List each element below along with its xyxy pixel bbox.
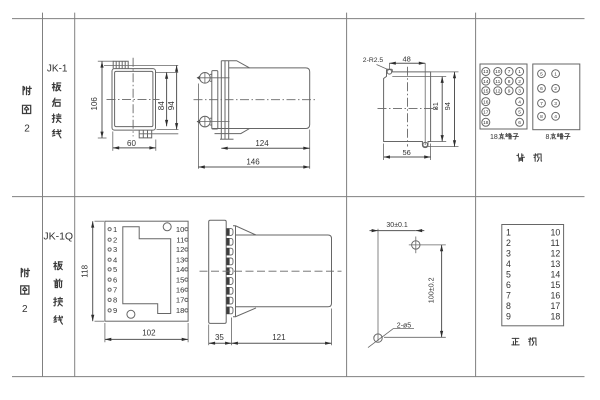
- svg-text:3: 3: [506, 249, 511, 259]
- svg-text:100±0.2: 100±0.2: [427, 277, 436, 303]
- svg-text:35: 35: [215, 333, 224, 342]
- svg-text:14: 14: [551, 269, 561, 279]
- svg-text:124: 124: [255, 139, 269, 148]
- svg-text:102: 102: [142, 329, 156, 338]
- svg-text:4: 4: [518, 99, 521, 105]
- svg-text:94: 94: [167, 101, 176, 110]
- svg-text:14: 14: [176, 265, 184, 274]
- svg-text:1: 1: [518, 69, 521, 75]
- svg-text:9: 9: [508, 88, 511, 94]
- svg-text:4: 4: [554, 114, 557, 120]
- svg-text:2: 2: [518, 79, 521, 85]
- svg-text:2: 2: [506, 238, 511, 248]
- svg-text:8: 8: [546, 134, 550, 141]
- svg-text:2: 2: [22, 304, 28, 315]
- svg-text:15: 15: [551, 280, 561, 290]
- svg-text:30±0.1: 30±0.1: [386, 222, 407, 229]
- svg-text:6: 6: [113, 275, 117, 284]
- svg-text:8: 8: [508, 79, 511, 85]
- svg-text:2: 2: [113, 235, 117, 244]
- svg-text:56: 56: [403, 148, 411, 157]
- svg-text:106: 106: [90, 97, 99, 111]
- svg-text:18: 18: [483, 120, 489, 126]
- svg-text:48: 48: [403, 54, 411, 63]
- svg-text:14: 14: [483, 79, 489, 85]
- svg-text:4: 4: [506, 259, 511, 269]
- svg-text:118: 118: [80, 264, 89, 277]
- svg-text:5: 5: [540, 71, 543, 77]
- svg-text:81: 81: [431, 102, 440, 110]
- svg-text:8: 8: [506, 301, 511, 311]
- svg-text:5: 5: [113, 265, 117, 274]
- svg-text:10: 10: [176, 225, 184, 234]
- svg-text:2-R2.5: 2-R2.5: [363, 57, 384, 64]
- svg-text:5: 5: [506, 269, 511, 279]
- svg-text:3: 3: [113, 245, 117, 254]
- svg-text:84: 84: [157, 101, 166, 110]
- svg-text:9: 9: [113, 306, 117, 315]
- svg-text:13: 13: [551, 259, 561, 269]
- svg-text:7: 7: [508, 69, 511, 75]
- svg-text:12: 12: [495, 88, 501, 94]
- svg-text:17: 17: [551, 301, 561, 311]
- svg-text:6: 6: [540, 86, 543, 92]
- svg-text:13: 13: [483, 69, 489, 75]
- svg-text:2: 2: [24, 123, 30, 134]
- svg-text:10: 10: [551, 228, 561, 238]
- svg-text:7: 7: [506, 291, 511, 301]
- svg-text:11: 11: [495, 79, 500, 85]
- svg-text:10: 10: [495, 69, 501, 75]
- svg-text:1: 1: [554, 71, 557, 77]
- svg-text:11: 11: [551, 238, 560, 248]
- svg-text:8: 8: [113, 296, 117, 305]
- svg-text:7: 7: [113, 285, 117, 294]
- svg-text:12: 12: [176, 245, 184, 254]
- svg-text:60: 60: [127, 139, 136, 148]
- svg-text:121: 121: [272, 333, 286, 342]
- svg-text:11: 11: [176, 235, 184, 244]
- svg-text:7: 7: [540, 101, 543, 107]
- svg-text:15: 15: [483, 88, 489, 94]
- svg-text:6: 6: [506, 280, 511, 290]
- svg-text:18: 18: [176, 306, 184, 315]
- svg-text:8: 8: [540, 114, 543, 120]
- svg-text:146: 146: [246, 158, 260, 167]
- svg-text:15: 15: [176, 275, 184, 284]
- svg-text:JK-1Q: JK-1Q: [43, 231, 73, 243]
- svg-text:16: 16: [176, 285, 184, 294]
- svg-text:17: 17: [176, 296, 184, 305]
- svg-text:JK-1: JK-1: [47, 64, 68, 75]
- svg-text:18: 18: [551, 311, 561, 321]
- svg-text:6: 6: [518, 120, 521, 126]
- svg-text:3: 3: [518, 88, 521, 94]
- svg-text:16: 16: [551, 291, 561, 301]
- svg-text:1: 1: [506, 228, 511, 238]
- svg-text:18: 18: [490, 134, 498, 141]
- svg-text:13: 13: [176, 255, 184, 264]
- svg-text:17: 17: [483, 110, 489, 116]
- svg-text:16: 16: [483, 99, 489, 105]
- svg-text:94: 94: [443, 102, 452, 110]
- svg-text:3: 3: [554, 101, 557, 107]
- svg-text:1: 1: [113, 225, 117, 234]
- svg-text:4: 4: [113, 255, 117, 264]
- svg-text:9: 9: [506, 311, 511, 321]
- svg-text:2: 2: [554, 86, 557, 92]
- svg-text:5: 5: [518, 110, 521, 116]
- svg-text:12: 12: [551, 249, 561, 259]
